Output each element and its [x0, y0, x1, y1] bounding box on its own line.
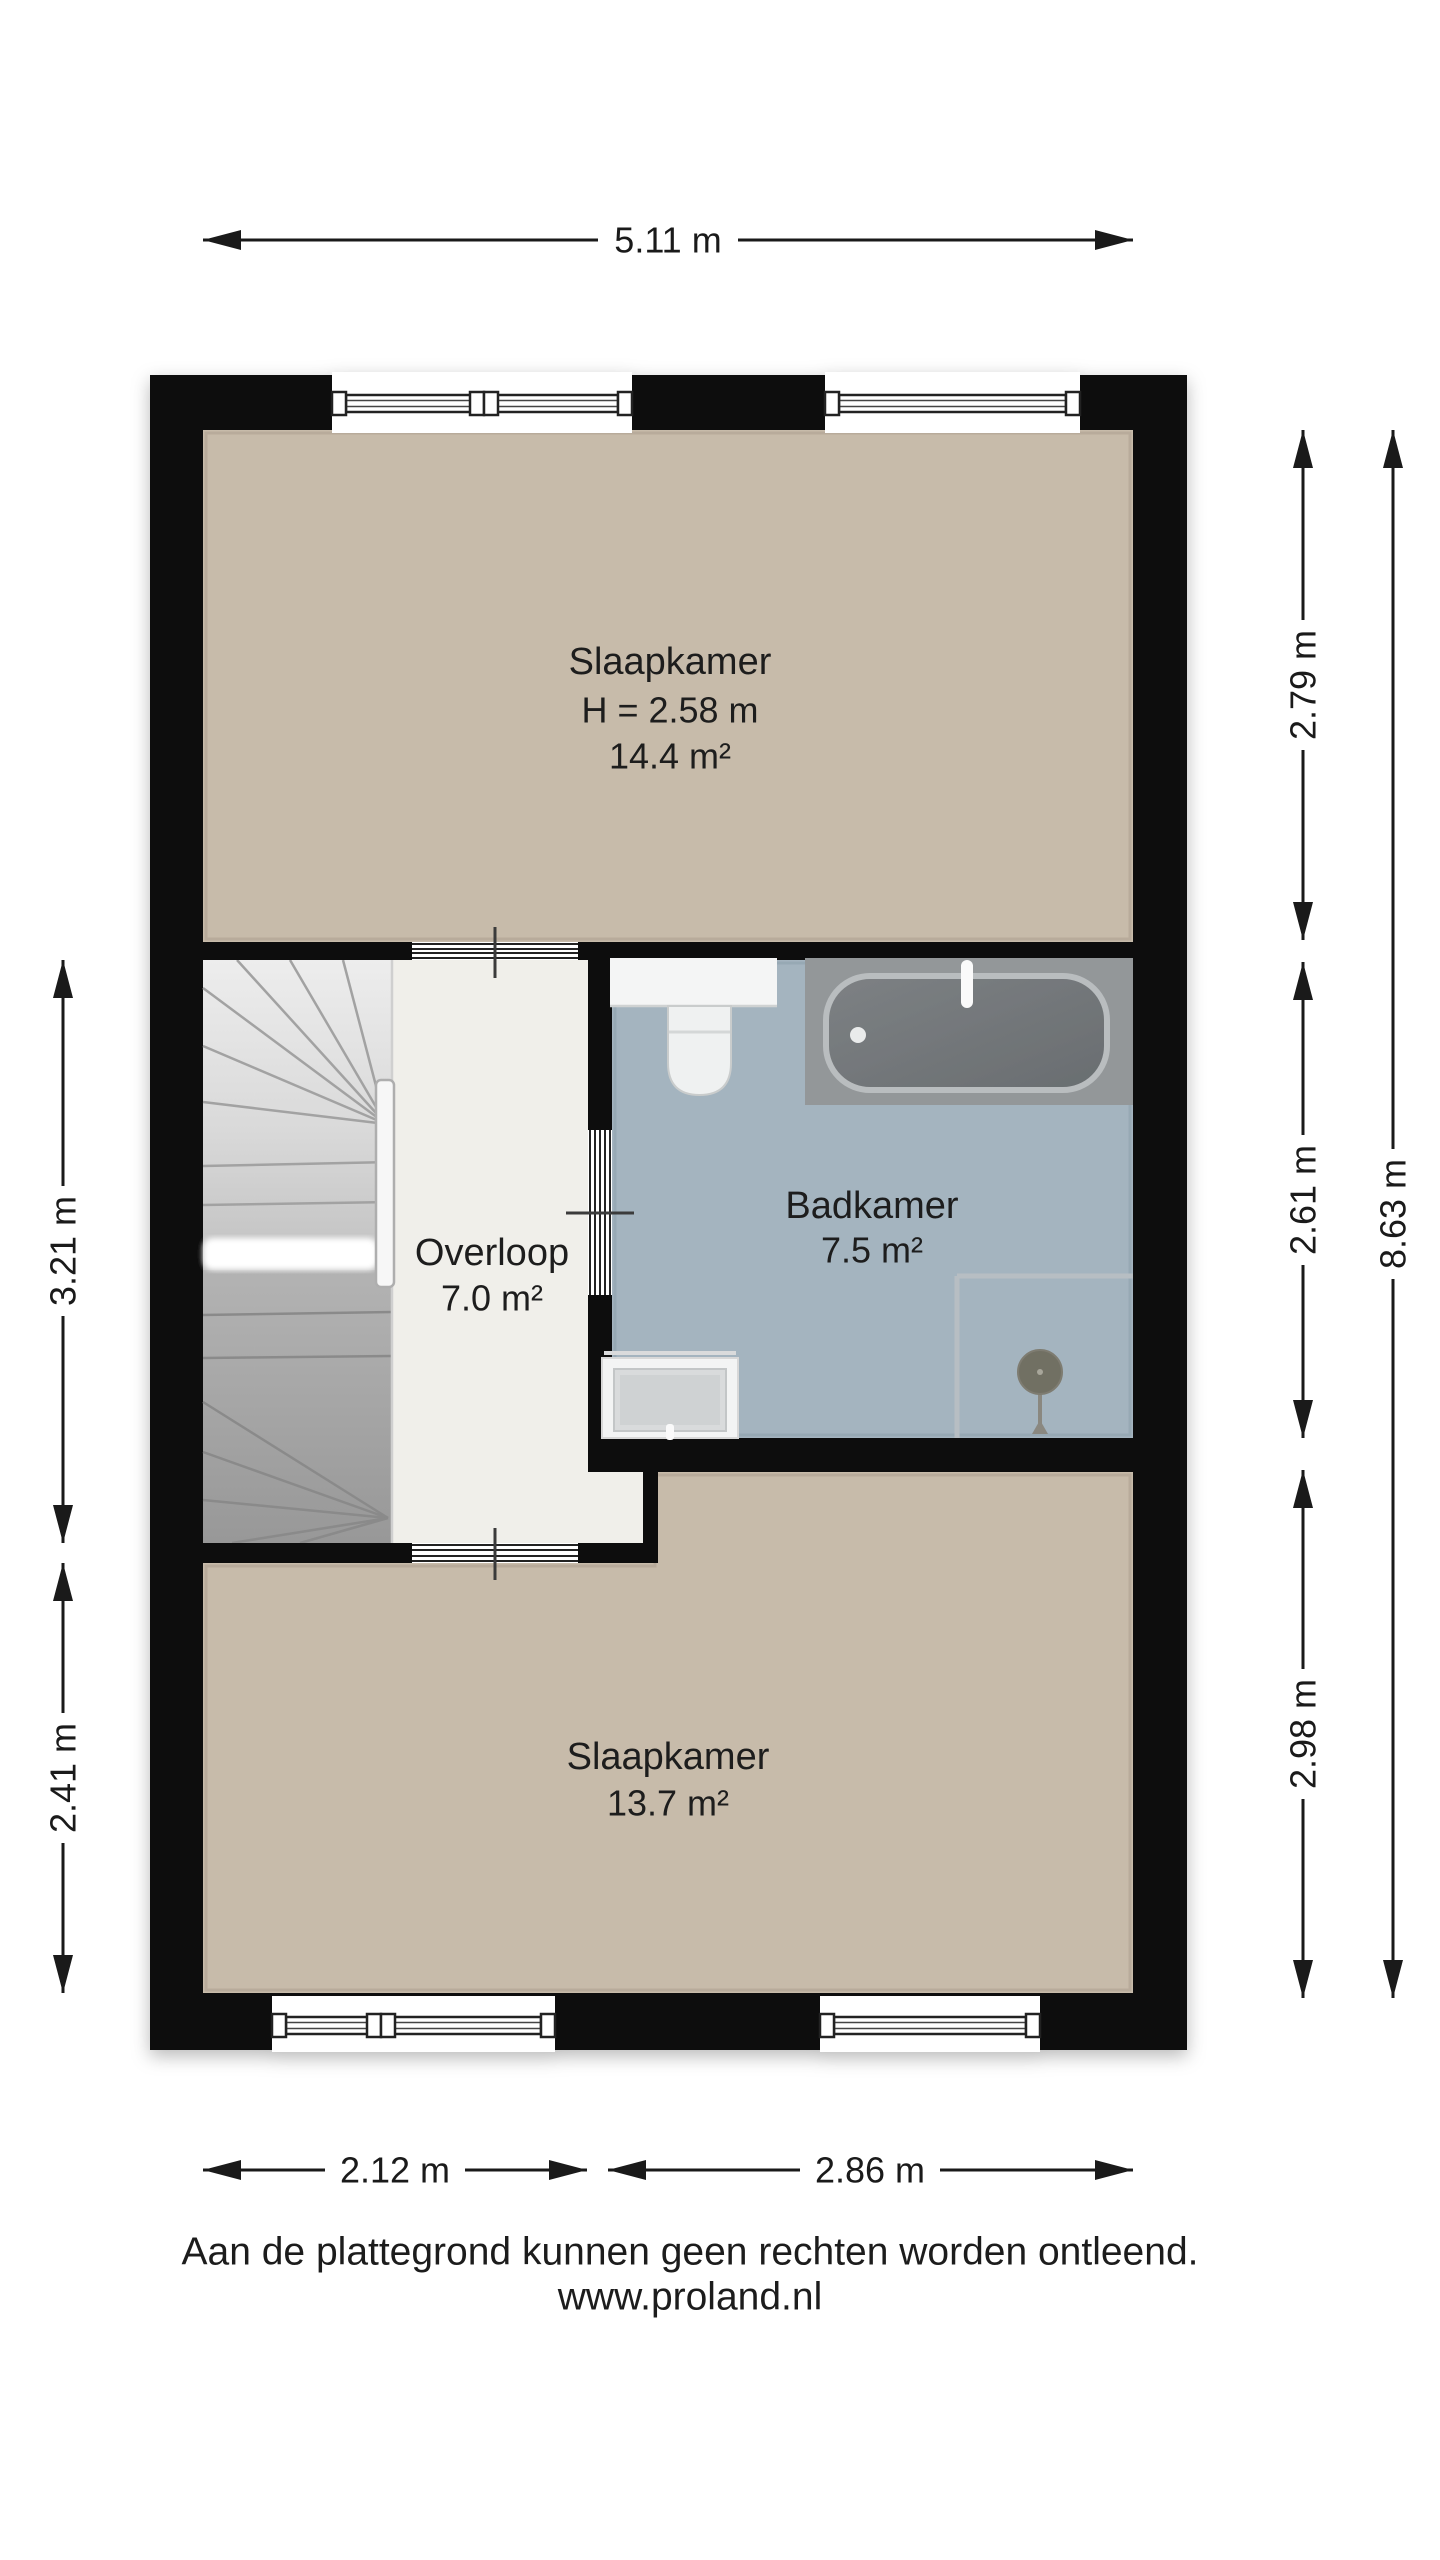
floorplan-page: Slaapkamer H = 2.58 m 14.4 m² Overloop 7…: [0, 0, 1440, 2560]
dimension-top: 5.11 m: [203, 220, 1133, 261]
dimension-right-total: 8.63 m: [1373, 430, 1414, 1998]
dimension-bottom-right: 2.86 m: [608, 2150, 1133, 2191]
dimension-right-middle: 2.61 m: [1283, 962, 1324, 1438]
dimension-left-upper: 3.21 m: [43, 960, 84, 1543]
staircase: [203, 960, 394, 1543]
dimension-bottom-left: 2.12 m: [203, 2150, 587, 2191]
room-area-badkamer: 7.5 m²: [821, 1230, 923, 1271]
room-area-slaapkamer-top: 14.4 m²: [609, 736, 731, 777]
room-label-badkamer: Badkamer: [785, 1185, 959, 1227]
window-top-left: [332, 372, 632, 433]
window-bottom-left: [272, 1996, 555, 2052]
dimension-label-top: 5.11 m: [614, 220, 721, 261]
stair-landing-strip: [203, 1238, 378, 1270]
washbasin-tap: [666, 1424, 674, 1440]
floorplan-svg: Slaapkamer H = 2.58 m 14.4 m² Overloop 7…: [0, 0, 1440, 2560]
dimension-label-right-middle: 2.61 m: [1283, 1145, 1324, 1255]
dimension-label-right-total: 8.63 m: [1373, 1159, 1414, 1269]
dimension-label-left-upper: 3.21 m: [43, 1196, 84, 1306]
window-top-right: [825, 372, 1080, 433]
dimension-label-bottom-left: 2.12 m: [340, 2150, 450, 2191]
stair-railing: [376, 1080, 394, 1287]
room-height-slaapkamer-top: H = 2.58 m: [581, 690, 758, 731]
washbasin: [602, 1353, 738, 1440]
room-area-slaapkamer-bottom: 13.7 m²: [607, 1783, 729, 1824]
room-label-overloop: Overloop: [415, 1232, 569, 1274]
dimension-label-left-lower: 2.41 m: [43, 1723, 84, 1833]
room-floor-overloop-nook: [588, 1472, 643, 1543]
dimension-label-right-upper: 2.79 m: [1283, 630, 1324, 740]
bathtub: [805, 958, 1133, 1105]
room-area-overloop: 7.0 m²: [441, 1278, 543, 1319]
bathtub-faucet: [961, 960, 973, 1008]
dimension-right-upper: 2.79 m: [1283, 430, 1324, 940]
footer-disclaimer: Aan de plattegrond kunnen geen rechten w…: [182, 2231, 1199, 2274]
room-label-slaapkamer-bottom: Slaapkamer: [567, 1736, 770, 1778]
bathtub-drain: [850, 1027, 866, 1043]
room-label-slaapkamer-top: Slaapkamer: [569, 641, 772, 683]
dimension-label-right-lower: 2.98 m: [1283, 1679, 1324, 1789]
window-bottom-right: [820, 1996, 1040, 2052]
footer-website: www.proland.nl: [557, 2276, 822, 2319]
dimension-label-bottom-right: 2.86 m: [815, 2150, 925, 2191]
room-floor-slaapkamer-top: [203, 430, 1133, 942]
dimension-left-lower: 2.41 m: [43, 1563, 84, 1993]
dimension-right-lower: 2.98 m: [1283, 1470, 1324, 1998]
